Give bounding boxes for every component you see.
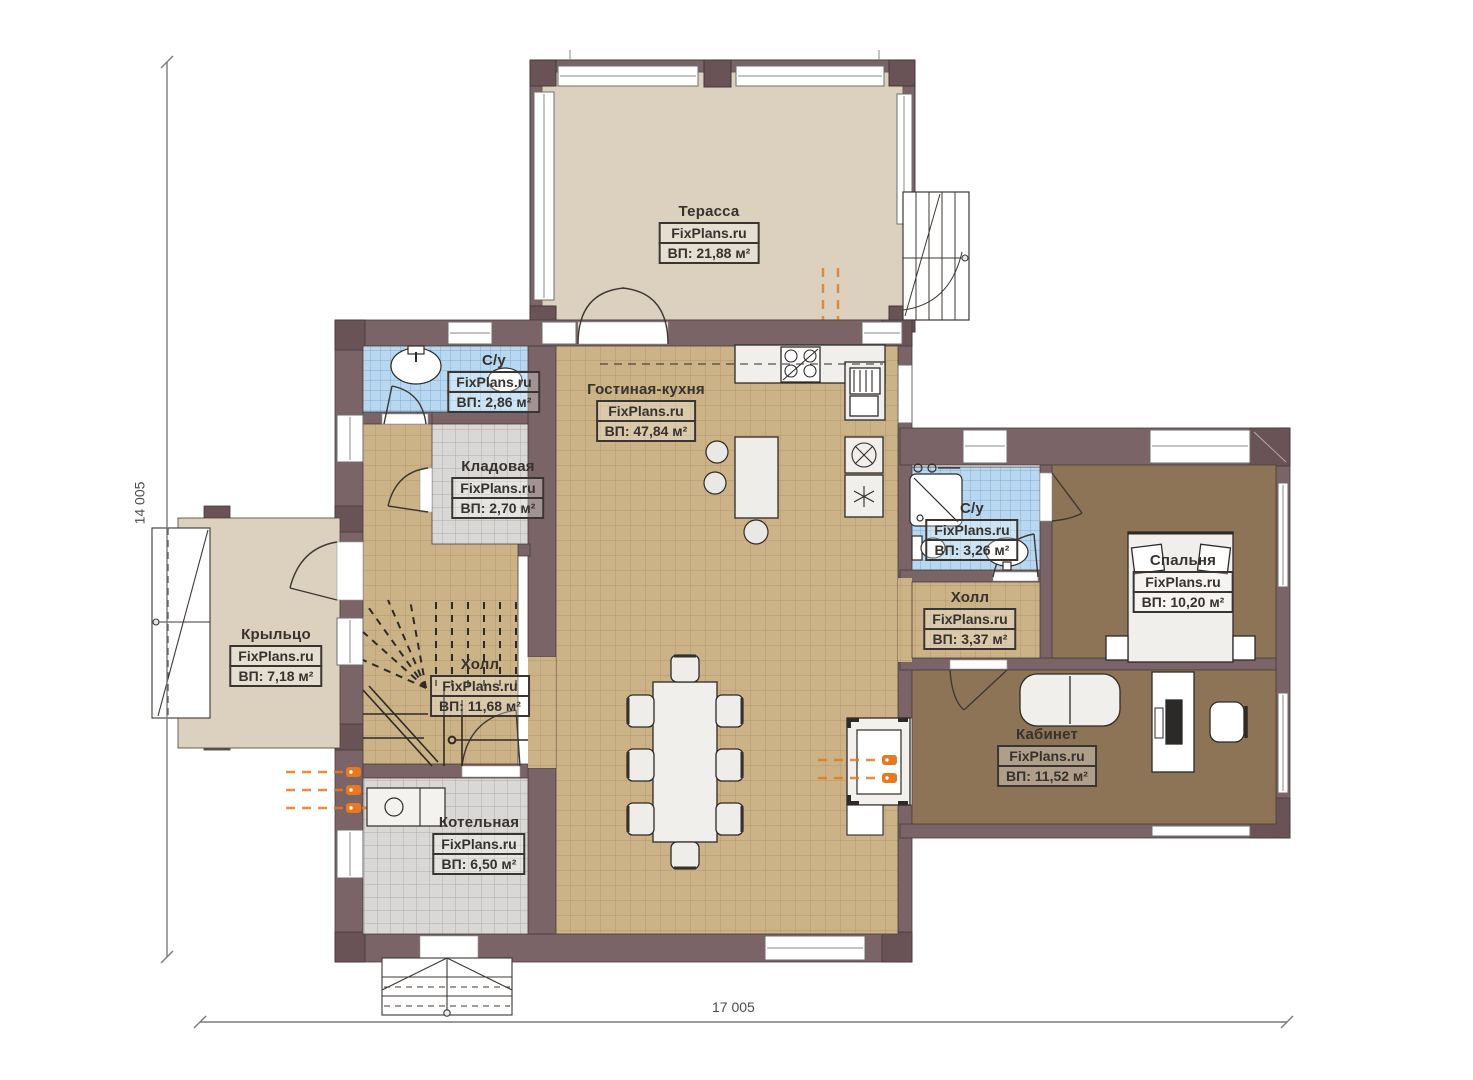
- room-label-su-2: С/у FixPlans.ruВП: 3,26 м²: [925, 500, 1018, 561]
- room-name: Терасса: [659, 203, 760, 220]
- exterior-steps-bottom: [382, 958, 512, 1016]
- room-area: ВП: 47,84 м²: [596, 420, 697, 442]
- room-area: ВП: 21,88 м²: [659, 242, 760, 264]
- room-watermark: FixPlans.ru: [432, 833, 525, 855]
- room-area: ВП: 10,20 м²: [1133, 591, 1234, 613]
- room-watermark: FixPlans.ru: [596, 400, 697, 422]
- room-label-bedroom: Спальня FixPlans.ruВП: 10,20 м²: [1133, 552, 1234, 613]
- room-label-storage: Кладовая FixPlans.ruВП: 2,70 м²: [451, 458, 544, 519]
- room-name: Кладовая: [451, 458, 544, 475]
- room-watermark: FixPlans.ru: [923, 608, 1016, 630]
- room-watermark: FixPlans.ru: [925, 519, 1018, 541]
- room-area: ВП: 3,37 м²: [923, 628, 1016, 650]
- room-area: ВП: 2,70 м²: [451, 497, 544, 519]
- room-name: Гостиная-кухня: [587, 381, 705, 398]
- terrace-structure: [530, 50, 915, 344]
- room-name: С/у: [447, 352, 540, 369]
- room-label-office: Кабинет FixPlans.ruВП: 11,52 м²: [997, 726, 1097, 787]
- room-area: ВП: 2,86 м²: [447, 391, 540, 413]
- room-label-hall-1: Холл FixPlans.ruВП: 11,68 м²: [430, 656, 530, 717]
- room-label-boiler: Котельная FixPlans.ruВП: 6,50 м²: [432, 814, 525, 875]
- room-area: ВП: 7,18 м²: [229, 665, 322, 687]
- room-name: Спальня: [1133, 552, 1234, 569]
- room-watermark: FixPlans.ru: [997, 745, 1097, 767]
- room-name: Крыльцо: [229, 626, 322, 643]
- room-label-su-1: С/у FixPlans.ruВП: 2,86 м²: [447, 352, 540, 413]
- dimension-height: 14 005: [131, 482, 147, 525]
- floor-plan-drawing: [0, 0, 1473, 1080]
- room-name: Котельная: [432, 814, 525, 831]
- room-name: Холл: [430, 656, 530, 673]
- room-watermark: FixPlans.ru: [430, 675, 530, 697]
- room-area: ВП: 6,50 м²: [432, 853, 525, 875]
- exterior-stairs-terrace: [903, 192, 969, 320]
- room-watermark: FixPlans.ru: [447, 371, 540, 393]
- room-watermark: FixPlans.ru: [1133, 571, 1234, 593]
- room-watermark: FixPlans.ru: [451, 477, 544, 499]
- room-name: Кабинет: [997, 726, 1097, 743]
- room-area: ВП: 3,26 м²: [925, 539, 1018, 561]
- room-label-living-kitchen: Гостиная-кухня FixPlans.ruВП: 47,84 м²: [587, 381, 705, 442]
- room-area: ВП: 11,52 м²: [997, 765, 1097, 787]
- room-watermark: FixPlans.ru: [659, 222, 760, 244]
- porch-steps: [152, 528, 210, 718]
- room-label-hall-2: Холл FixPlans.ruВП: 3,37 м²: [923, 589, 1016, 650]
- room-name: Холл: [923, 589, 1016, 606]
- room-name: С/у: [925, 500, 1018, 517]
- floor-plan: Терасса FixPlans.ruВП: 21,88 м² С/у FixP…: [0, 0, 1473, 1080]
- dimension-width: 17 005: [712, 999, 755, 1015]
- room-watermark: FixPlans.ru: [229, 645, 322, 667]
- room-label-terrace: Терасса FixPlans.ruВП: 21,88 м²: [659, 203, 760, 264]
- room-label-porch: Крыльцо FixPlans.ruВП: 7,18 м²: [229, 626, 322, 687]
- room-area: ВП: 11,68 м²: [430, 695, 530, 717]
